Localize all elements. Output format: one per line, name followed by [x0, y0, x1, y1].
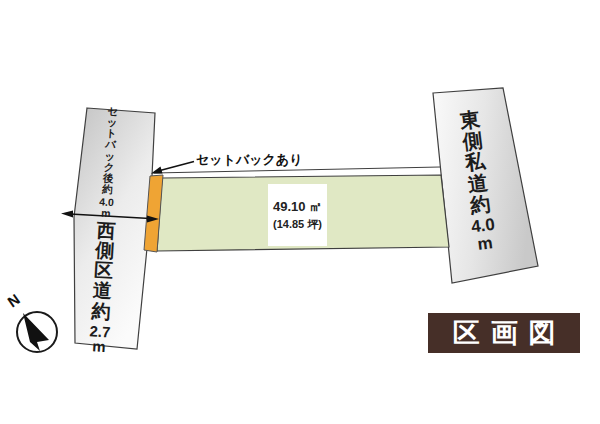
title-badge-label: 区画図 — [453, 315, 567, 351]
west-road-setback-unit: m — [101, 207, 111, 219]
plot-layout-diagram: セットバック後約 4.0 m 西側区道約 2.7 m 東側私道約 4.0 m セ… — [0, 0, 600, 424]
callout-arrow-line — [160, 162, 194, 171]
west-road-unit: m — [92, 339, 106, 356]
parcel-area-box: 49.10 ㎡ (14.85 坪) — [268, 184, 327, 246]
setback-callout-label: セットバックあり — [196, 151, 302, 169]
parcel-area-sqm: 49.10 ㎡ — [273, 198, 322, 216]
title-badge: 区画図 — [428, 313, 580, 353]
width-arrow-head-left — [61, 211, 73, 218]
east-road-unit: m — [477, 234, 494, 254]
parcel-area-tsubo: (14.85 坪) — [273, 217, 322, 232]
